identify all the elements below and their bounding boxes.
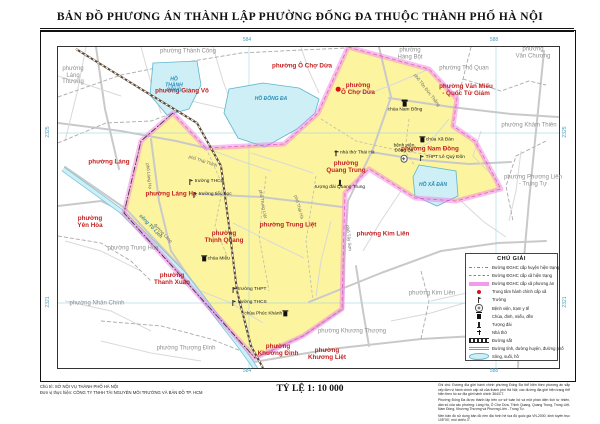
legend-item-label: Đường sắt xyxy=(492,338,512,343)
legend-item: Đường ĐGHC cấp xã phương án xyxy=(469,280,554,288)
legend-item: Chùa, đình, miếu, đền xyxy=(469,312,554,320)
map-sheet: BẢN ĐỒ PHƯƠNG ÁN THÀNH LẬP PHƯỜNG ĐỐNG Đ… xyxy=(0,0,600,424)
legend-swatch-dashdot xyxy=(469,267,489,268)
legend-item: Tượng đài xyxy=(469,320,554,328)
credits-line2: Đơn vị thực hiện: CÔNG TY TNHH TÀI NGUYÊ… xyxy=(40,390,203,396)
note-paragraph: Ghi chú: Đường địa giới hành chính phườn… xyxy=(438,383,570,397)
legend-item: Trung tâm hành chính cấp xã xyxy=(469,288,554,296)
legend-item-label: Trung tâm hành chính cấp xã xyxy=(492,289,546,294)
legend-item: Đường ĐGHC cấp xã hiện trạng xyxy=(469,272,554,280)
legend-title: CHÚ GIẢI xyxy=(469,256,554,262)
note-paragraph: Nền bản đồ sử dụng bản đồ nền địa hình h… xyxy=(438,414,570,423)
legend-box: CHÚ GIẢI Đường ĐGHC cấp huyện hiện trạng… xyxy=(465,253,558,361)
legend-swatch-railway xyxy=(469,338,489,343)
legend-item: Bệnh viện, trạm y tế xyxy=(469,304,554,312)
legend-swatch-monument xyxy=(469,322,489,327)
page-title: BẢN ĐỒ PHƯƠNG ÁN THÀNH LẬP PHƯỜNG ĐỐNG Đ… xyxy=(0,11,600,23)
legend-swatch-road xyxy=(469,347,489,349)
legend-item: Đường sắt xyxy=(469,336,554,344)
legend-item-label: Chùa, đình, miếu, đền xyxy=(492,314,533,319)
legend-swatch-water xyxy=(469,353,489,360)
legend-item-label: Đường tỉnh, đường huyện, đường phố xyxy=(492,346,564,351)
lake-thanh-cong xyxy=(150,61,201,115)
legend-items: Đường ĐGHC cấp huyện hiện trạngĐường ĐGH… xyxy=(469,264,554,361)
legend-item: Sông, suối, hồ xyxy=(469,353,554,361)
legend-item-label: Đường ĐGHC cấp xã hiện trạng xyxy=(492,273,552,278)
legend-item-label: Sông, suối, hồ xyxy=(492,354,519,359)
legend-item: Đường ĐGHC cấp huyện hiện trạng xyxy=(469,264,554,272)
legend-swatch-school xyxy=(469,297,489,303)
legend-item-label: Đường ĐGHC cấp huyện hiện trạng xyxy=(492,265,559,270)
credits: Chủ trì: SỞ NỘI VỤ THÀNH PHỐ HÀ NỘI Đơn … xyxy=(40,384,203,397)
legend-item-label: Đường ĐGHC cấp xã phương án xyxy=(492,281,554,286)
legend-swatch-pagoda xyxy=(469,314,489,319)
legend-swatch-dash xyxy=(469,275,489,276)
legend-item-label: Bệnh viện, trạm y tế xyxy=(492,306,529,311)
legend-item: Đường tỉnh, đường huyện, đường phố xyxy=(469,344,554,352)
legend-swatch-band xyxy=(469,282,489,286)
legend-item-label: Tượng đài xyxy=(492,322,512,327)
legend-item: Trường xyxy=(469,296,554,304)
legend-item-label: Nhà thờ xyxy=(492,330,507,335)
note-paragraph: Phường Đống Đa được thành lập trên cơ sở… xyxy=(438,398,570,412)
legend-item-label: Trường xyxy=(492,297,506,302)
scale-label: TỶ LỆ 1: 10 000 xyxy=(230,384,390,394)
legend-swatch-hospital xyxy=(469,304,489,312)
legend-swatch-dot xyxy=(469,290,489,295)
legend-item: Nhà thờ xyxy=(469,328,554,336)
legend-swatch-church xyxy=(469,330,489,336)
notes-block: Ghi chú: Đường địa giới hành chính phườn… xyxy=(438,383,570,424)
